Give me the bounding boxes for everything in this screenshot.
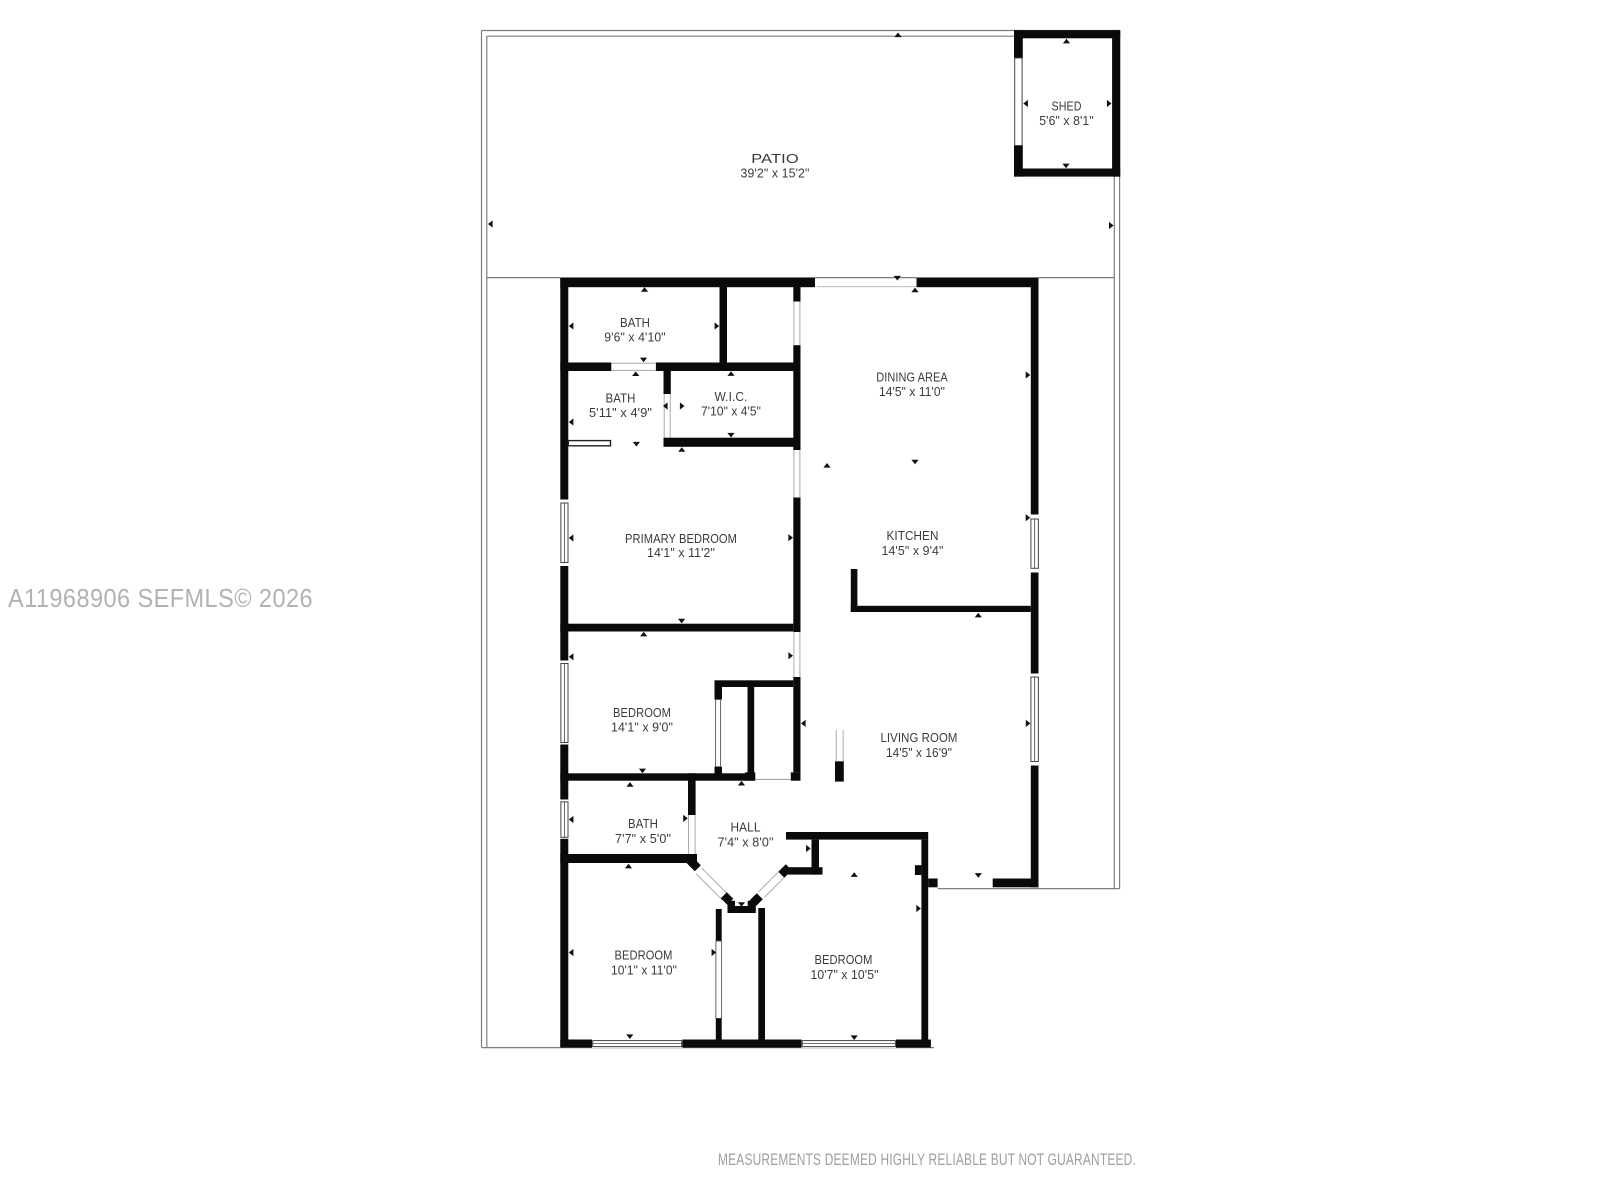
- svg-text:SHED: SHED: [1052, 99, 1082, 114]
- svg-text:7'4" x 8'0": 7'4" x 8'0": [718, 835, 774, 850]
- svg-text:BEDROOM: BEDROOM: [815, 952, 873, 967]
- svg-text:7'10" x 4'5": 7'10" x 4'5": [701, 404, 761, 419]
- svg-text:10'7" x 10'5": 10'7" x 10'5": [811, 967, 879, 982]
- svg-text:KITCHEN: KITCHEN: [887, 528, 939, 543]
- svg-text:LIVING ROOM: LIVING ROOM: [881, 730, 958, 745]
- svg-text:BATH: BATH: [628, 816, 658, 831]
- svg-text:BATH: BATH: [606, 391, 636, 406]
- svg-text:14'1" x 11'2": 14'1" x 11'2": [647, 545, 715, 560]
- svg-text:HALL: HALL: [731, 820, 761, 835]
- svg-text:9'6" x 4'10": 9'6" x 4'10": [604, 330, 666, 345]
- svg-text:MEASUREMENTS DEEMED HIGHLY REL: MEASUREMENTS DEEMED HIGHLY RELIABLE BUT …: [718, 1151, 1136, 1169]
- svg-text:14'5" x 9'4": 14'5" x 9'4": [882, 543, 944, 558]
- svg-text:14'1" x 9'0": 14'1" x 9'0": [611, 720, 673, 735]
- svg-text:5'6" x 8'1": 5'6" x 8'1": [1039, 113, 1094, 128]
- svg-text:DINING AREA: DINING AREA: [876, 370, 948, 385]
- svg-text:BATH: BATH: [620, 315, 650, 330]
- svg-text:14'5" x 16'9": 14'5" x 16'9": [886, 745, 952, 760]
- svg-text:PATIO: PATIO: [751, 151, 799, 166]
- svg-text:W.I.C.: W.I.C.: [715, 389, 748, 404]
- svg-text:5'11" x 4'9": 5'11" x 4'9": [589, 405, 652, 420]
- svg-text:39'2" x 15'2": 39'2" x 15'2": [741, 166, 810, 181]
- svg-text:PRIMARY BEDROOM: PRIMARY BEDROOM: [625, 531, 737, 546]
- svg-text:14'5" x 11'0": 14'5" x 11'0": [879, 384, 945, 399]
- svg-text:BEDROOM: BEDROOM: [613, 705, 671, 720]
- svg-text:7'7" x 5'0": 7'7" x 5'0": [615, 831, 671, 846]
- svg-text:A11968906 SEFMLS© 2026: A11968906 SEFMLS© 2026: [8, 583, 313, 613]
- svg-text:10'1" x 11'0": 10'1" x 11'0": [611, 963, 677, 978]
- svg-text:BEDROOM: BEDROOM: [615, 948, 673, 963]
